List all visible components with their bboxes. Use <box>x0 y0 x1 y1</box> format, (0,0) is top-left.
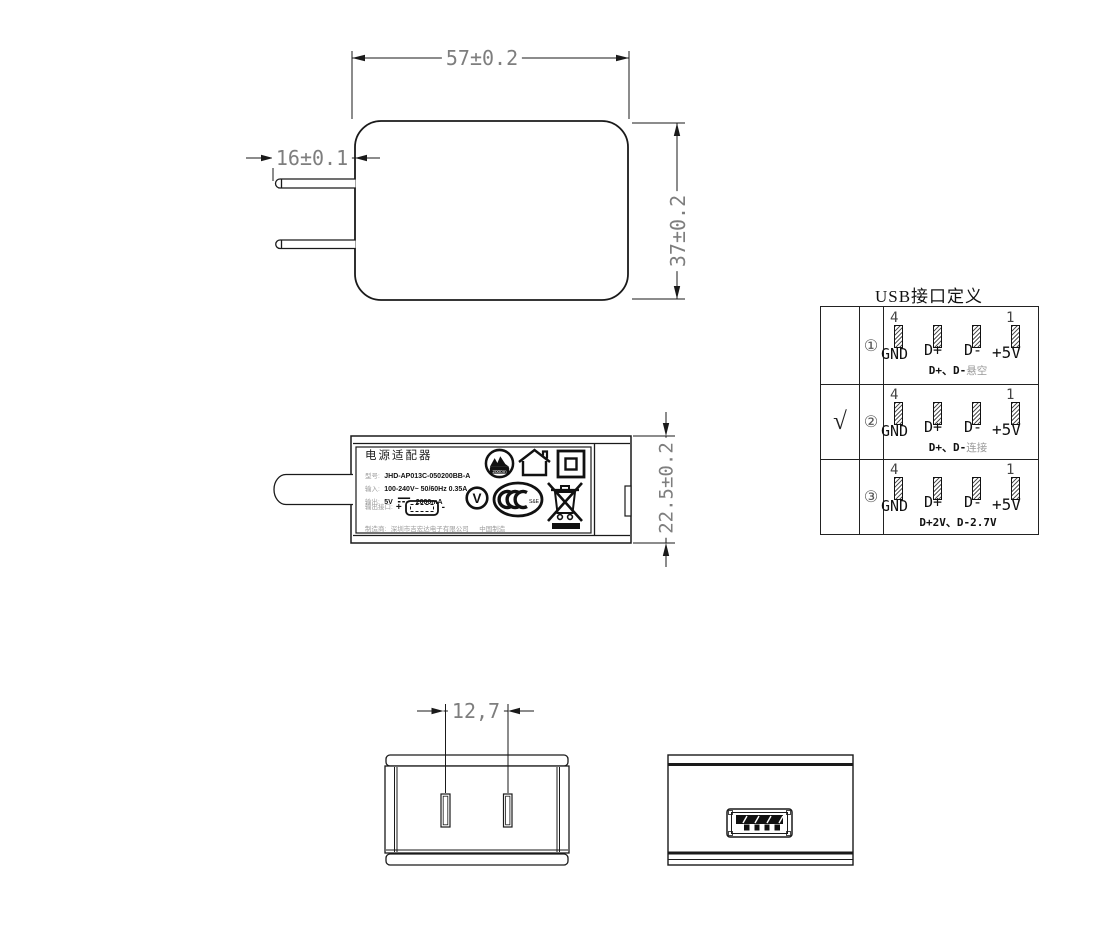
bottom-plug-view-outline <box>385 755 569 865</box>
pin-label-gnd: GND <box>881 424 908 439</box>
pin-number-4: 4 <box>890 462 898 478</box>
port-plus: + <box>396 502 402 514</box>
altitude-2000m-icon: 2000m <box>484 448 515 479</box>
pin-number-1: 1 <box>1006 462 1014 478</box>
pin-number-4: 4 <box>890 387 898 403</box>
pin-label-dplus: D+ <box>924 343 942 358</box>
efficiency-v-icon: V <box>465 486 489 510</box>
pinout-row-1: ① 4 1 GND D+ D- +5V D+、D-悬空 <box>821 307 1038 384</box>
row-note: D+、D-连接 <box>883 442 1033 454</box>
pinout-row-2: √ ② 4 1 GND D+ D- +5V D+、D-连接 <box>821 384 1038 459</box>
pin-number-1: 1 <box>1006 310 1014 326</box>
ccc-mark-icon: S&E <box>492 481 544 518</box>
pin-label-5v: +5V <box>992 422 1021 438</box>
svg-text:2000m: 2000m <box>492 469 506 474</box>
maker-value: 深圳市吉宏达电子有限公司 <box>391 526 469 533</box>
pin-label-dplus: D+ <box>924 420 942 435</box>
row-note: D+2V、D-2.7V <box>883 517 1033 529</box>
pin-label-gnd: GND <box>881 347 908 362</box>
pin-number-4: 4 <box>890 310 898 326</box>
pin-number-1: 1 <box>1006 387 1014 403</box>
pin-label-dminus: D- <box>964 343 982 358</box>
port-key: 输出接口: <box>365 504 393 511</box>
row-note: D+、D-悬空 <box>883 365 1033 377</box>
svg-text:S&E: S&E <box>529 499 540 505</box>
row-index-badge: ③ <box>859 459 883 534</box>
label-maker-line: 制造商: 深圳市吉宏达电子有限公司 中国制造 <box>365 518 505 536</box>
dim-prong-pitch: 12,7 <box>448 701 504 721</box>
selected-mark <box>821 459 859 534</box>
selected-mark: √ <box>821 384 859 459</box>
label-port-line: 输出接口: + - <box>365 500 445 516</box>
indoor-use-house-icon <box>516 447 553 478</box>
product-label: 电源适配器 型号: JHD-AP013C-050200BB-A 输入: 100-… <box>356 447 591 533</box>
weee-bar-icon <box>552 523 580 529</box>
selected-mark <box>821 307 859 384</box>
dim-front-height: 37±0.2 <box>668 191 688 271</box>
usb-face-view-outline <box>668 755 853 865</box>
dim-prong-length: 16±0.1 <box>272 148 352 168</box>
row-index-badge: ② <box>859 384 883 459</box>
pin-label-dminus: D- <box>964 495 982 510</box>
pin-label-dminus: D- <box>964 420 982 435</box>
dim-side-thickness: 22.5±0.2 <box>658 438 677 538</box>
pin-label-dplus: D+ <box>924 495 942 510</box>
usb-plug-icon <box>405 500 439 516</box>
usb-table-title: USB接口定义 <box>875 282 983 307</box>
pin-label-5v: +5V <box>992 345 1021 361</box>
port-minus: - <box>442 502 445 514</box>
dim-front-width: 57±0.2 <box>442 48 522 68</box>
origin-label: 中国制造 <box>479 526 505 533</box>
weee-crossed-bin-icon <box>546 477 584 523</box>
svg-text:V: V <box>472 491 481 506</box>
pin-label-5v: +5V <box>992 497 1021 513</box>
pinout-row-3: ③ 4 1 GND D+ D- +5V D+2V、D-2.7V <box>821 459 1038 534</box>
class-ii-insulation-icon <box>556 449 586 479</box>
usb-pinout-table: ① 4 1 GND D+ D- +5V D+、D-悬空 √ ② 4 1 GND <box>820 306 1039 535</box>
technical-drawing-canvas: 57±0.2 16±0.1 37±0.2 22.5±0.2 12,7 电源适配器… <box>0 0 1100 925</box>
row-index-badge: ① <box>859 307 883 384</box>
label-title: 电源适配器 <box>365 450 433 463</box>
pin-label-gnd: GND <box>881 499 908 514</box>
maker-key: 制造商: <box>365 526 386 533</box>
